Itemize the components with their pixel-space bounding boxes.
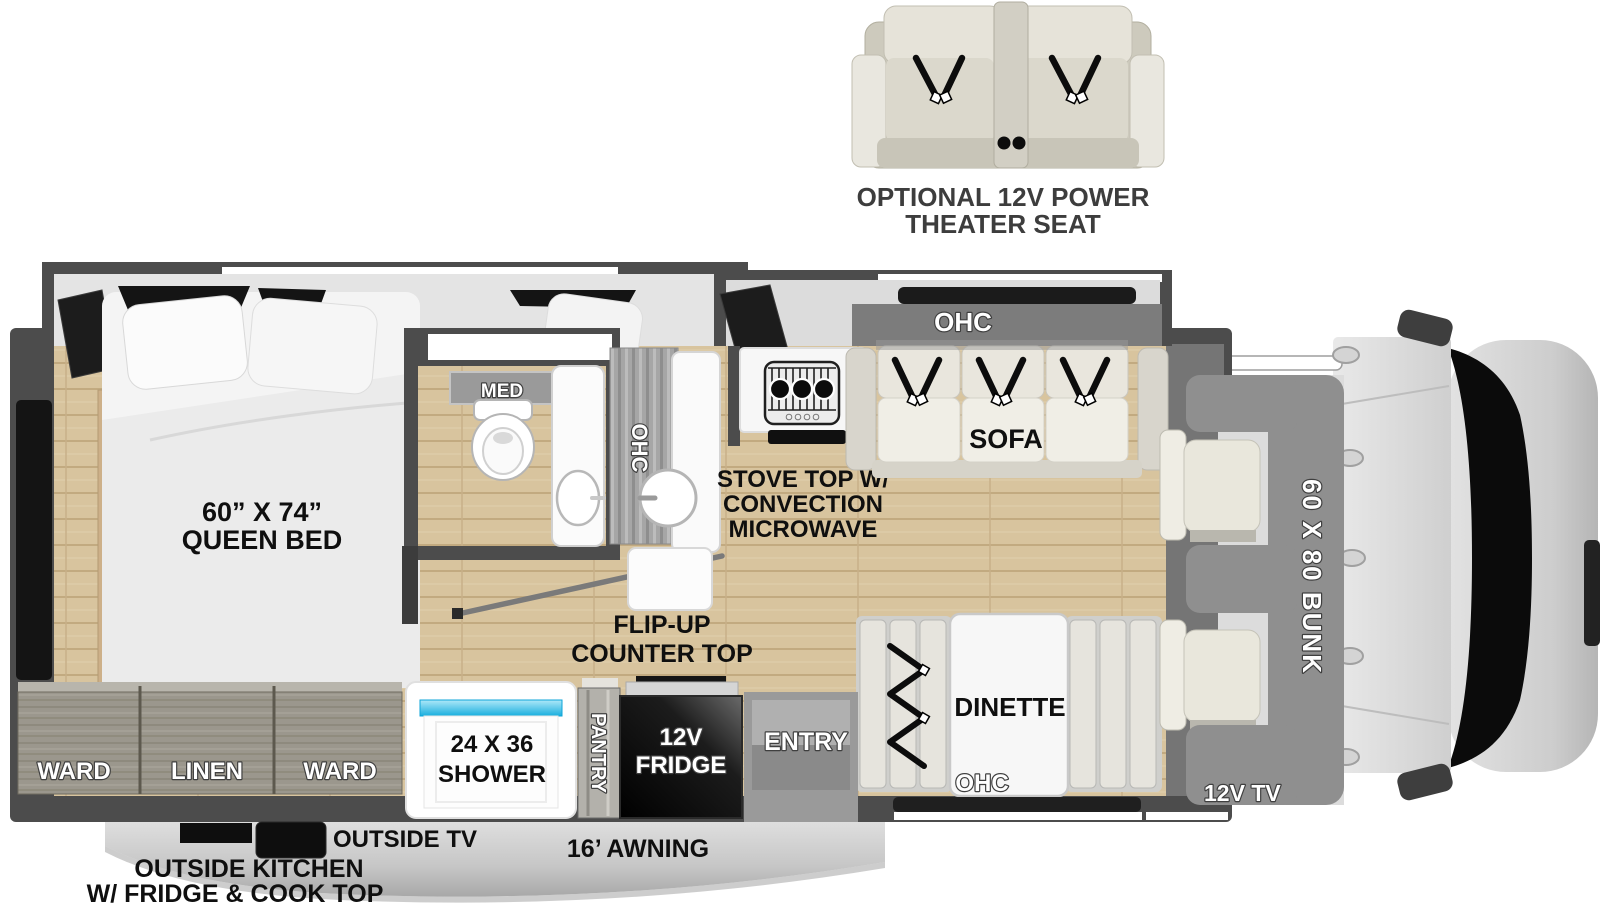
floorplan-canvas: OPTIONAL 12V POWER THEATER SEAT bbox=[0, 0, 1600, 910]
outside-kitchen-hatch bbox=[180, 823, 252, 843]
pantry: PANTRY bbox=[578, 678, 620, 818]
flip-up-counter bbox=[628, 548, 712, 610]
wardrobe-row: WARD LINEN WARD bbox=[18, 682, 402, 794]
fridge-label-line2: FRIDGE bbox=[636, 752, 727, 779]
outside-tv-label: OUTSIDE TV bbox=[333, 826, 477, 853]
dinette-window-bar bbox=[893, 797, 1141, 812]
dinette: DINETTE OHC bbox=[856, 614, 1162, 797]
entry-label: ENTRY bbox=[764, 728, 848, 756]
rear-window bbox=[16, 400, 52, 680]
theater-seat-headrest-right bbox=[1014, 6, 1132, 64]
shower-label-line1: 24 X 36 bbox=[451, 731, 534, 758]
bedroom-slide-window-band bbox=[222, 267, 618, 275]
sofa-label: SOFA bbox=[969, 424, 1043, 454]
cowl-line bbox=[1222, 356, 1342, 370]
sofa-front-skirt bbox=[872, 460, 1142, 478]
stove-label-line2: CONVECTION bbox=[723, 491, 883, 518]
cupholder-icon bbox=[1013, 137, 1026, 150]
shower-label-line2: SHOWER bbox=[438, 761, 546, 788]
dinette-label: DINETTE bbox=[954, 692, 1065, 722]
theater-seat-illustration: OPTIONAL 12V POWER THEATER SEAT bbox=[852, 2, 1164, 239]
rv-floorplan-page: OPTIONAL 12V POWER THEATER SEAT bbox=[0, 0, 1600, 910]
outside-kitchen-label-line1: OUTSIDE KITCHEN bbox=[134, 855, 363, 883]
theater-seat-headrest-left bbox=[884, 6, 1002, 64]
stove-top-icon bbox=[765, 362, 839, 424]
optional-theater-seat-label-line1: OPTIONAL 12V POWER bbox=[857, 182, 1150, 212]
awning-band: OUTSIDE TV 16’ AWNING OUTSIDE KITCHEN W/… bbox=[87, 822, 885, 908]
bottom-window-band bbox=[1146, 812, 1228, 820]
linen-label: LINEN bbox=[171, 758, 243, 785]
sofa: SOFA bbox=[846, 340, 1168, 478]
dinette-ohc-label: OHC bbox=[955, 770, 1008, 797]
medicine-cabinet-label: MED bbox=[481, 381, 523, 402]
bunk-panel bbox=[1186, 375, 1298, 432]
stove-label-line3: MICROWAVE bbox=[729, 516, 878, 543]
kitchen-partition-wall bbox=[728, 346, 740, 446]
pillow bbox=[246, 297, 378, 396]
cupholder-icon bbox=[998, 137, 1011, 150]
flip-up-counter-label-line2: COUNTER TOP bbox=[571, 640, 753, 668]
flip-up-counter-label-line1: FLIP-UP bbox=[613, 611, 710, 639]
oven-vent bbox=[768, 430, 846, 444]
queen-bed-label-line2: QUEEN BED bbox=[182, 525, 343, 555]
refrigerator: 12V FRIDGE bbox=[620, 676, 742, 818]
bathroom-sink bbox=[552, 366, 604, 546]
wardrobe-left-label: WARD bbox=[37, 758, 110, 785]
sofa-overhead-cabinet bbox=[852, 304, 1162, 346]
kitchen-ohc-label: OHC bbox=[627, 424, 652, 473]
pocket-door bbox=[402, 546, 418, 624]
pantry-label: PANTRY bbox=[587, 713, 609, 794]
pillow bbox=[121, 294, 249, 391]
bunk-label: 60 X 80 BUNK bbox=[1297, 479, 1327, 675]
optional-theater-seat-label-line2: THEATER SEAT bbox=[905, 209, 1101, 239]
cab-grille-shadow bbox=[1584, 540, 1600, 646]
toilet-icon bbox=[472, 400, 534, 480]
sofa-armrest-left bbox=[846, 348, 876, 470]
fridge-label-line1: 12V bbox=[660, 724, 703, 751]
bathroom-window-band bbox=[428, 334, 612, 360]
passenger-seat bbox=[1160, 620, 1260, 732]
door-pivot bbox=[452, 608, 463, 619]
shower-glass bbox=[420, 700, 562, 716]
shower: 24 X 36 SHOWER bbox=[406, 682, 576, 818]
outside-kitchen-label-line2: W/ FRIDGE & COOK TOP bbox=[87, 880, 384, 908]
bottom-window-band bbox=[894, 812, 1142, 820]
sofa-shadow bbox=[876, 340, 1128, 350]
queen-bed-label-line1: 60” X 74” bbox=[202, 497, 322, 527]
sofa-ohc-label: OHC bbox=[934, 307, 992, 337]
bunk-panel bbox=[1186, 545, 1298, 613]
wardrobe-right-label: WARD bbox=[303, 758, 376, 785]
front-tv-label: 12V TV bbox=[1204, 780, 1281, 806]
driver-seat bbox=[1160, 430, 1260, 542]
entry-door: ENTRY bbox=[744, 692, 858, 822]
outside-tv-mount bbox=[256, 822, 326, 858]
awning-label: 16’ AWNING bbox=[567, 835, 709, 863]
slide-window-bar bbox=[898, 287, 1136, 304]
